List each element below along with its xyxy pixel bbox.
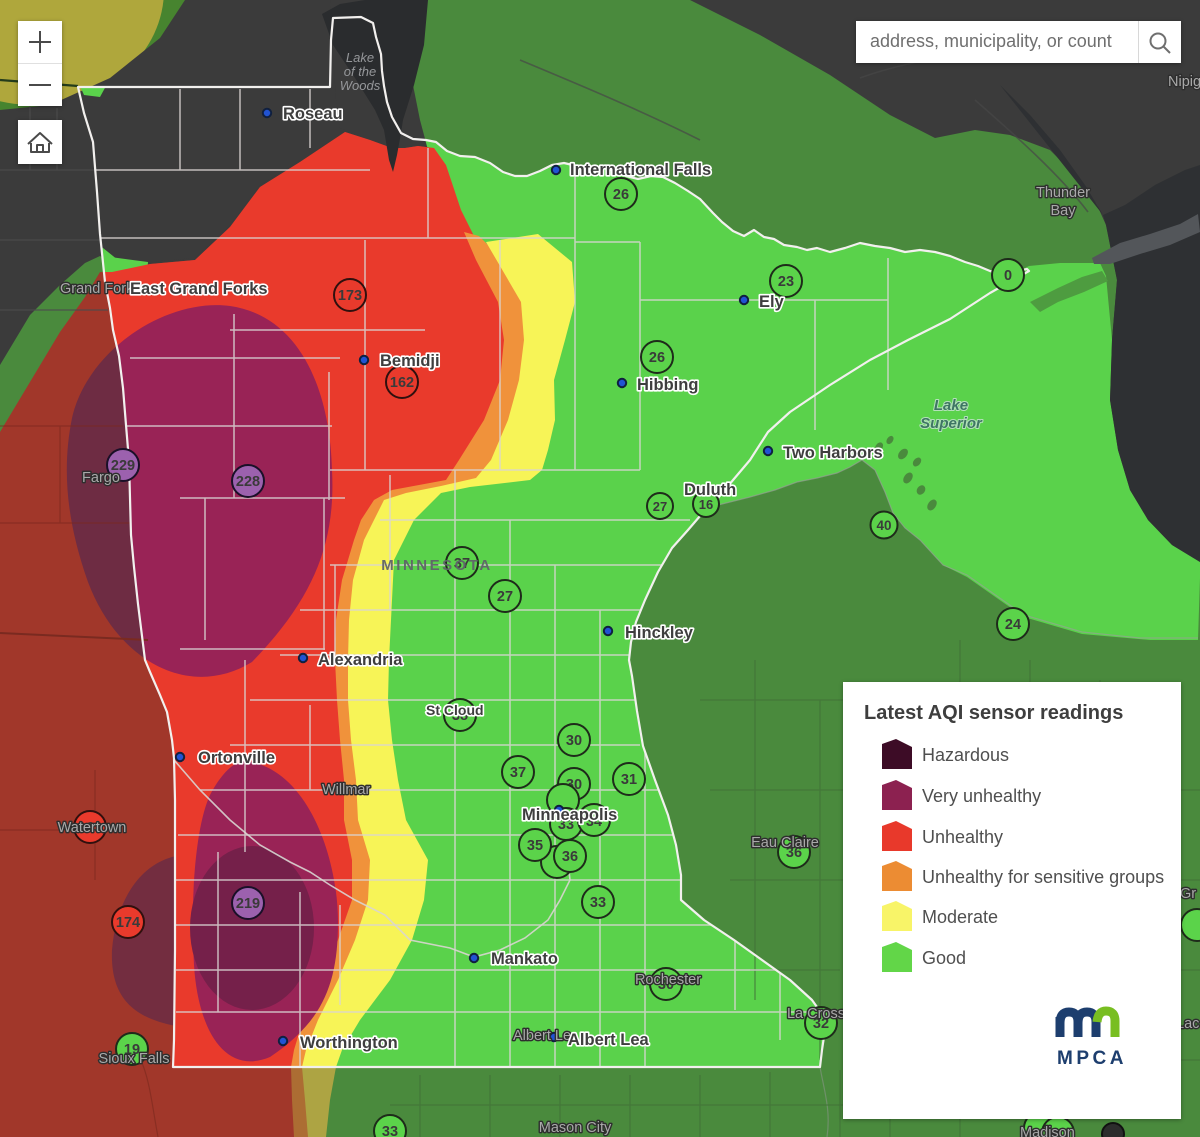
- svg-text:Madison: Madison: [1020, 1125, 1075, 1137]
- svg-text:30: 30: [566, 733, 582, 749]
- svg-text:27: 27: [497, 589, 513, 605]
- svg-text:Willmar: Willmar: [322, 782, 370, 798]
- svg-text:162: 162: [390, 375, 414, 391]
- svg-text:23: 23: [778, 274, 794, 290]
- svg-text:Minneapolis: Minneapolis: [522, 806, 617, 824]
- svg-text:Hinckley: Hinckley: [625, 624, 694, 642]
- svg-text:Watertown: Watertown: [58, 820, 127, 836]
- svg-text:27: 27: [653, 499, 667, 514]
- svg-text:Ortonville: Ortonville: [198, 749, 275, 767]
- svg-text:16: 16: [699, 497, 713, 512]
- svg-text:31: 31: [621, 772, 637, 788]
- svg-text:173: 173: [338, 288, 362, 304]
- svg-text:Gr: Gr: [1180, 886, 1196, 902]
- svg-text:Bay: Bay: [1051, 203, 1077, 219]
- svg-text:35: 35: [527, 838, 543, 854]
- svg-text:228: 228: [236, 474, 260, 490]
- svg-text:26: 26: [613, 187, 629, 203]
- svg-text:Hibbing: Hibbing: [637, 376, 698, 394]
- svg-text:St Cloud: St Cloud: [426, 702, 484, 718]
- svg-text:Hazardous: Hazardous: [922, 745, 1009, 765]
- svg-text:Thunder: Thunder: [1036, 185, 1090, 201]
- svg-text:Nipigon: Nipigon: [1168, 74, 1200, 90]
- svg-text:33: 33: [590, 895, 606, 911]
- svg-text:Mankato: Mankato: [491, 950, 558, 968]
- svg-text:Duluth: Duluth: [684, 481, 736, 499]
- svg-text:0: 0: [1004, 268, 1012, 284]
- svg-text:Albert Le: Albert Le: [513, 1028, 571, 1044]
- svg-text:Albert Lea: Albert Lea: [568, 1031, 650, 1049]
- svg-text:Rochester: Rochester: [635, 972, 701, 988]
- svg-text:Alexandria: Alexandria: [318, 651, 403, 669]
- svg-text:MPCA: MPCA: [1057, 1048, 1127, 1069]
- svg-text:Grand Forks: Grand Forks: [60, 281, 141, 297]
- svg-text:Two Harbors: Two Harbors: [783, 444, 883, 462]
- svg-text:26: 26: [649, 350, 665, 366]
- svg-text:Unhealthy: Unhealthy: [922, 827, 1003, 847]
- svg-text:40: 40: [876, 518, 891, 533]
- svg-text:Lake: Lake: [346, 50, 374, 65]
- svg-text:MINNESOTA: MINNESOTA: [381, 557, 492, 574]
- svg-text:Bemidji: Bemidji: [380, 352, 440, 370]
- svg-text:of the: of the: [344, 64, 377, 79]
- svg-text:Mason City: Mason City: [539, 1120, 612, 1136]
- svg-text:37: 37: [510, 765, 526, 781]
- svg-text:Sioux Falls: Sioux Falls: [99, 1051, 170, 1067]
- svg-text:174: 174: [116, 915, 140, 931]
- svg-text:Worthington: Worthington: [300, 1034, 398, 1052]
- svg-text:Ely: Ely: [759, 293, 785, 311]
- svg-text:Unhealthy for sensitive groups: Unhealthy for sensitive groups: [922, 867, 1164, 887]
- svg-text:Roseau: Roseau: [283, 105, 343, 123]
- svg-text:Fargo: Fargo: [82, 470, 120, 486]
- svg-text:Very unhealthy: Very unhealthy: [922, 786, 1041, 806]
- svg-text:Superior: Superior: [920, 415, 983, 432]
- svg-text:Lake: Lake: [934, 397, 968, 414]
- svg-text:Woods: Woods: [340, 78, 381, 93]
- svg-text:Eau Claire: Eau Claire: [751, 835, 819, 851]
- svg-text:Moderate: Moderate: [922, 907, 998, 927]
- svg-text:Good: Good: [922, 948, 966, 968]
- svg-text:International Falls: International Falls: [570, 161, 711, 179]
- svg-text:East Grand Forks: East Grand Forks: [130, 280, 268, 298]
- svg-text:36: 36: [562, 849, 578, 865]
- svg-text:33: 33: [382, 1124, 398, 1137]
- svg-text:24: 24: [1005, 617, 1021, 633]
- svg-text:219: 219: [236, 896, 260, 912]
